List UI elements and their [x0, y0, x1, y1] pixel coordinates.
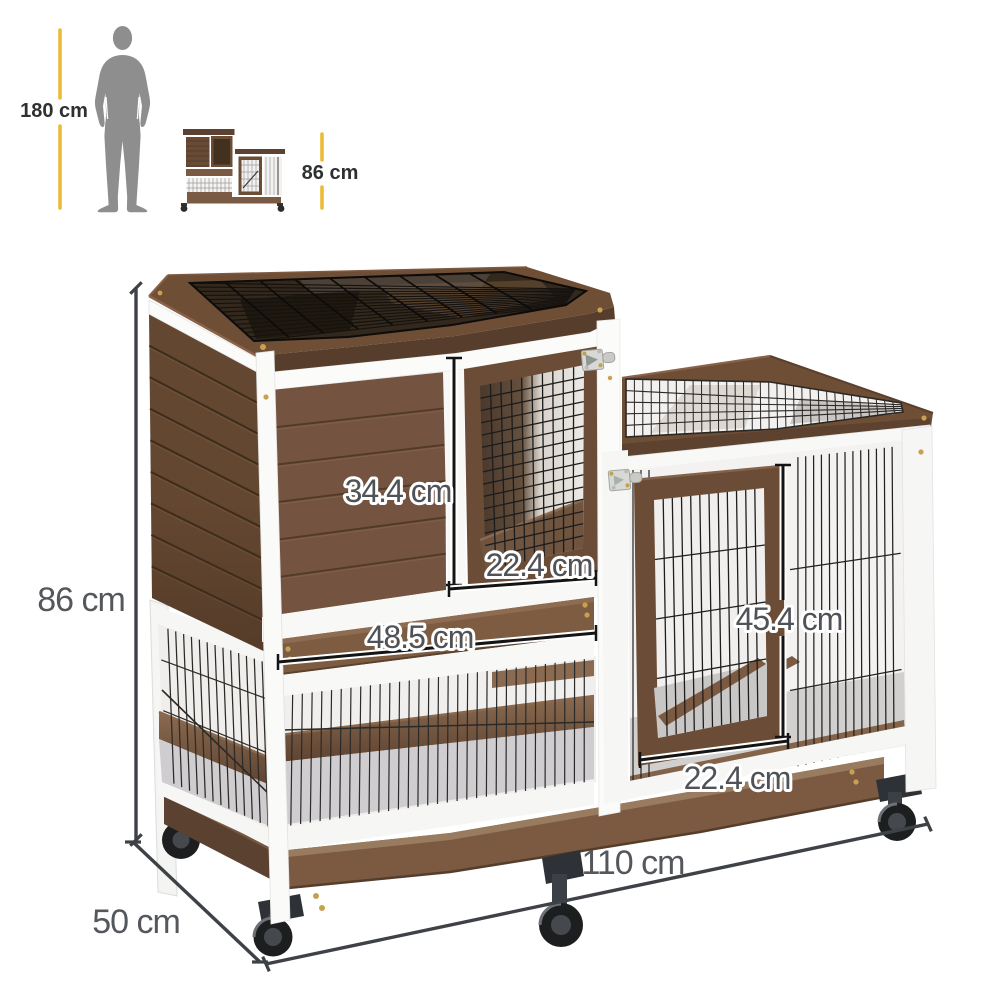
svg-text:34.4 cm: 34.4 cm	[345, 473, 452, 509]
svg-text:180 cm: 180 cm	[20, 100, 88, 122]
svg-text:86 cm: 86 cm	[302, 162, 359, 184]
svg-text:50 cm: 50 cm	[92, 903, 180, 941]
svg-text:22.4 cm: 22.4 cm	[486, 547, 593, 583]
svg-text:86 cm: 86 cm	[37, 581, 125, 619]
svg-text:110 cm: 110 cm	[582, 844, 685, 882]
svg-text:45.4 cm: 45.4 cm	[736, 601, 843, 637]
svg-text:48.5 cm: 48.5 cm	[367, 619, 474, 655]
svg-text:22.4 cm: 22.4 cm	[684, 760, 791, 796]
